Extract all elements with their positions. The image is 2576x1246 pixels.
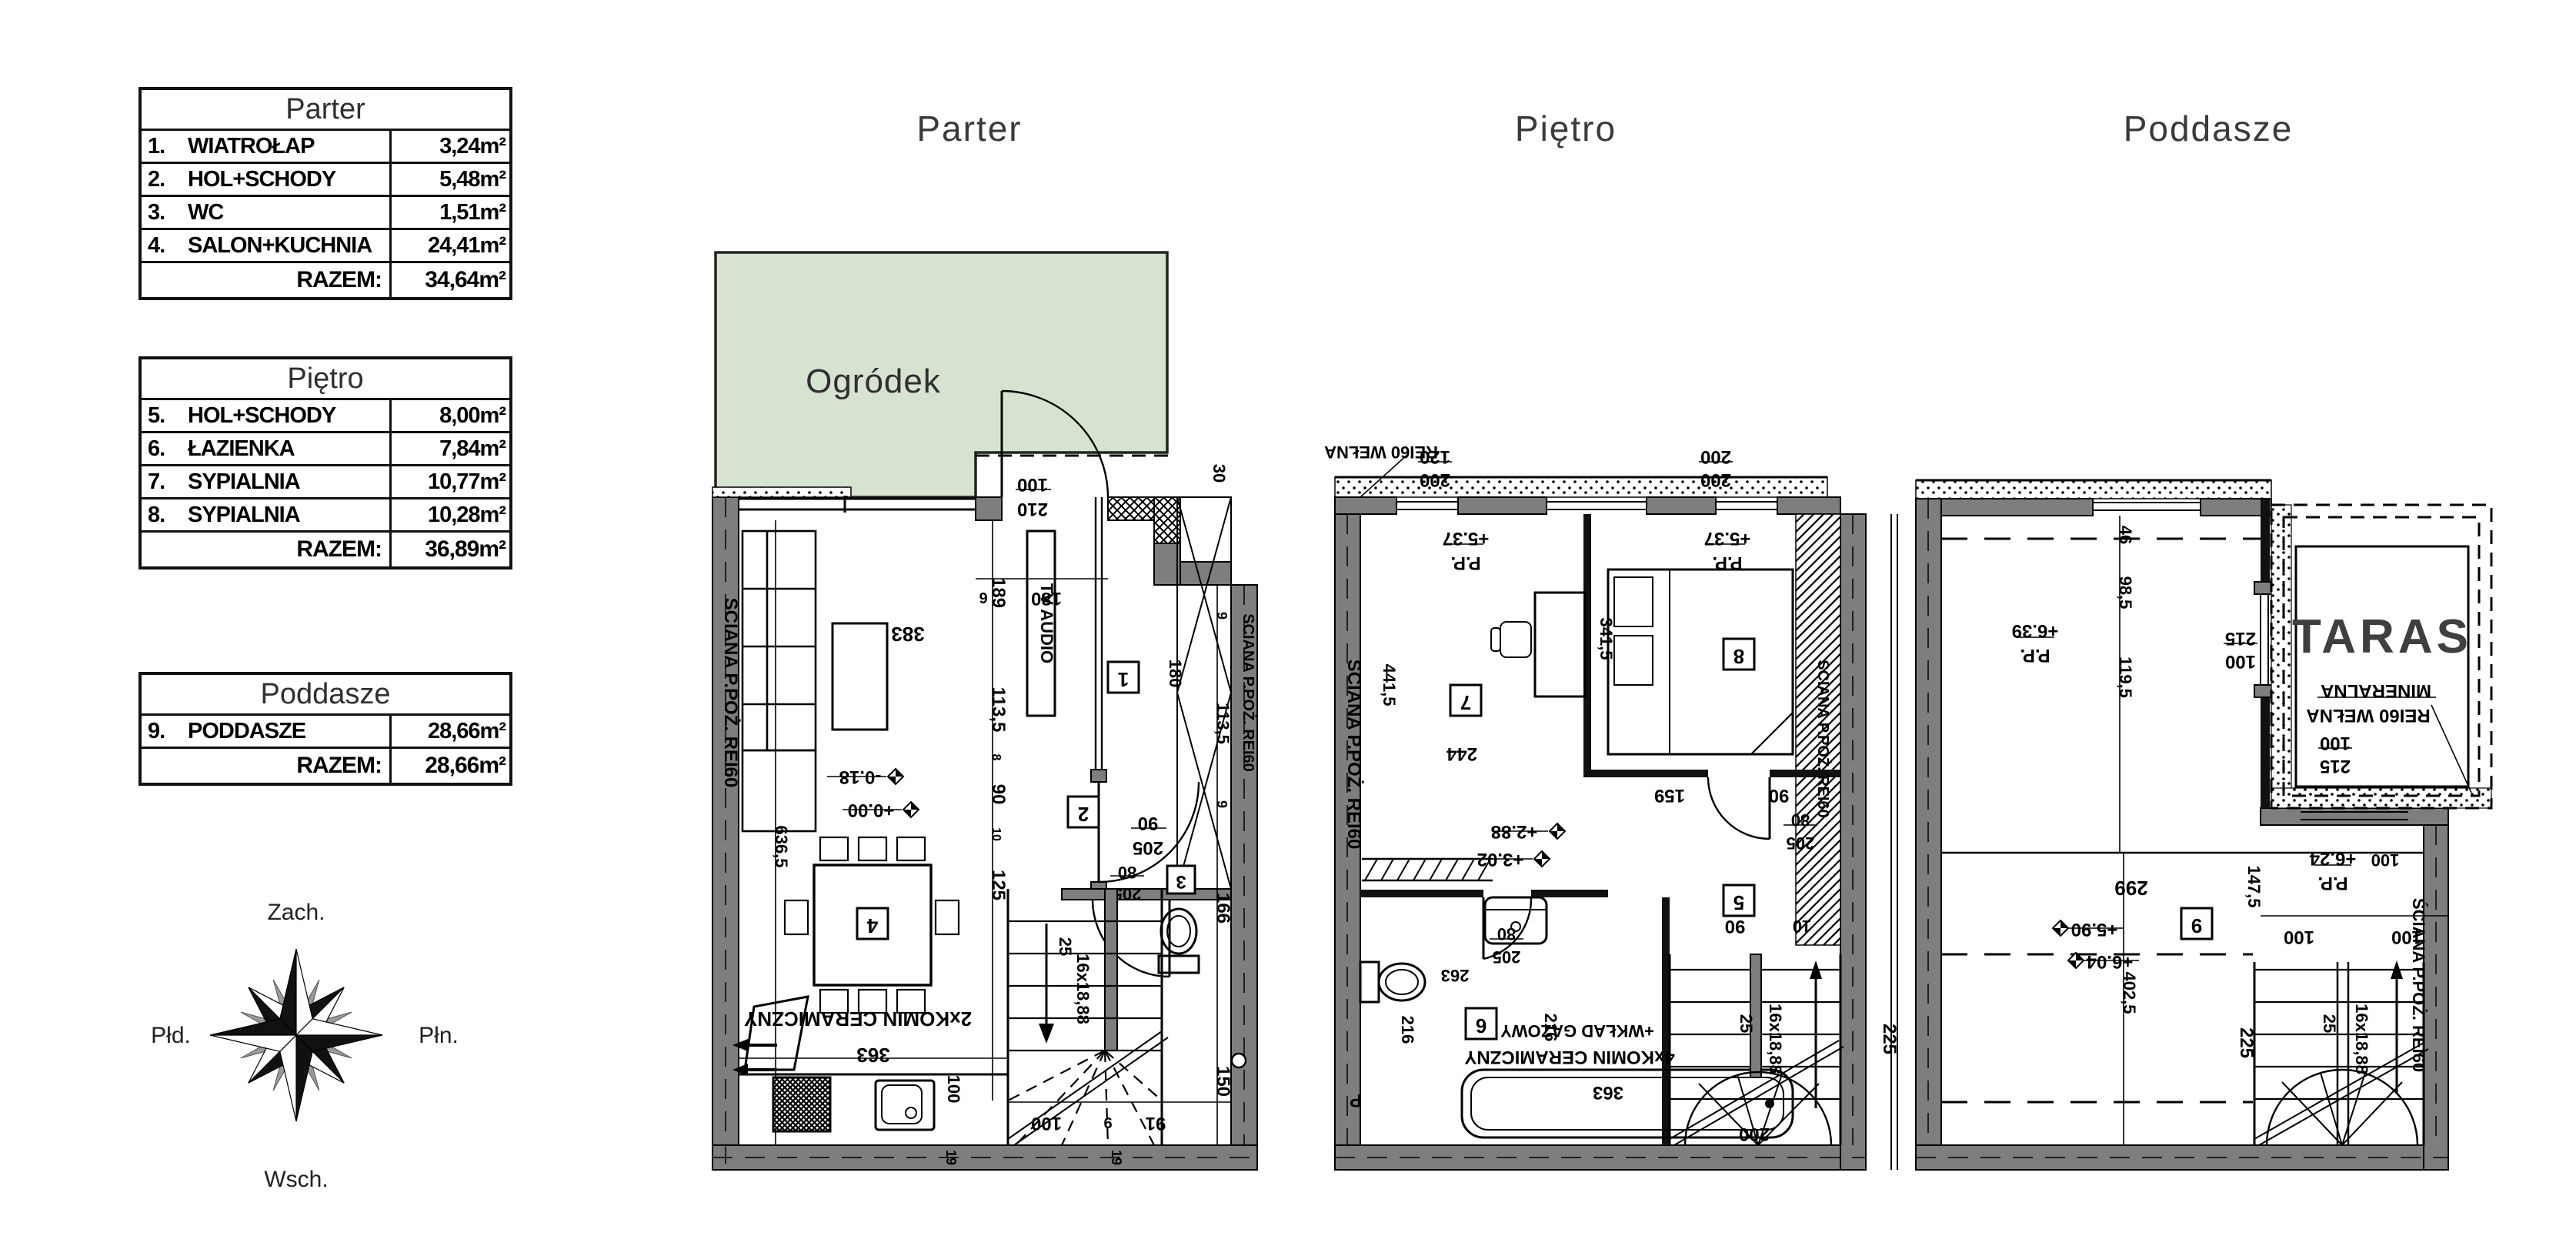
dim-label: 100 <box>1031 1113 1062 1134</box>
dim-label: 100 <box>1017 474 1048 495</box>
dim-label: 200 <box>1700 446 1731 467</box>
dim-label: 120 <box>1420 446 1450 467</box>
level-label: P.P. <box>1450 553 1480 573</box>
table-title: Parter <box>142 90 509 131</box>
level-label: +6.04 <box>2086 951 2133 972</box>
dim-label: 100 <box>944 1075 963 1104</box>
dim-label: 100 <box>2225 651 2256 672</box>
room-tag: 8 <box>1733 645 1744 668</box>
dim-label: 383 <box>891 623 924 646</box>
dim-label: 30 <box>1210 464 1229 483</box>
dim-label: 80 <box>1497 924 1516 944</box>
room-tag: 5 <box>1733 891 1744 914</box>
row-no: 2. <box>142 164 188 195</box>
row-name: SALON+KUCHNIA <box>188 230 389 261</box>
room-tag: 1 <box>1118 668 1129 691</box>
wall-symbol <box>1232 1054 1246 1067</box>
toilet-icon <box>1360 962 1425 1002</box>
level-label: +2.88 <box>1491 821 1538 842</box>
dim-label: 80 <box>1118 863 1136 882</box>
compass-rose: Zach. Płn. Wsch. Płd. <box>123 877 485 1208</box>
room-tag: 3 <box>1176 871 1186 892</box>
dim-label: 402,5 <box>2120 971 2139 1014</box>
dim-label: 159 <box>1654 785 1685 806</box>
total-label: RAZEM: <box>142 263 389 297</box>
level-label: +5.37 <box>1443 528 1490 549</box>
table-row: 6. ŁAZIENKA 7,84m² <box>142 433 509 466</box>
window-band <box>739 496 976 513</box>
insulation-label: MINERALNA <box>2321 680 2431 701</box>
row-name: PODDASZE <box>188 716 389 747</box>
total-value: 34,64m² <box>389 263 509 297</box>
row-area: 7,84m² <box>389 433 509 464</box>
dim-label: 25 <box>2320 1014 2339 1033</box>
dim-label: 113,5 <box>1213 703 1233 744</box>
level-label: P.P. <box>1712 553 1742 573</box>
toilet-icon <box>1159 909 1199 973</box>
compass-label-south: Płd. <box>151 1023 191 1048</box>
row-no: 6. <box>142 433 188 464</box>
dim-label: 25 <box>1056 937 1075 956</box>
dim-label: 98,5 <box>2116 576 2135 610</box>
table-total-row: RAZEM: 28,66m² <box>142 749 509 783</box>
coffee-table <box>833 623 887 730</box>
table-total-row: RAZEM: 34,64m² <box>142 263 509 297</box>
floorplan-parter: Ogródek 100 210 <box>677 231 1323 1231</box>
table-row: 7. SYPIALNIA 10,77m² <box>142 466 509 499</box>
table-row: 3. WC 1,51m² <box>142 197 509 230</box>
dim-label: 363 <box>1593 1082 1623 1103</box>
dim-label: 113,5 <box>988 687 1009 733</box>
dim-label: 9 <box>1214 800 1230 808</box>
pion-label: P <box>1350 1090 1362 1111</box>
table-pietro: Piętro 5. HOL+SCHODY 8,00m² 6. ŁAZIENKA … <box>138 356 512 570</box>
row-no: 9. <box>142 716 188 747</box>
level-label: P.P. <box>2317 873 2347 894</box>
chair <box>1491 622 1531 657</box>
table-total-row: RAZEM: 36,89m² <box>142 533 509 566</box>
level-label: +0.00 <box>848 800 895 820</box>
stairs <box>1670 954 1844 1145</box>
plan-title-pietro: Piętro <box>1435 108 1697 149</box>
compass-label-west: Zach. <box>267 900 325 925</box>
insulation-label: REI60 WEŁNA <box>2306 705 2430 726</box>
row-no: 3. <box>142 197 188 228</box>
table-parter: Parter 1. WIATROŁAP 3,24m² 2. HOL+SCHODY… <box>138 87 512 300</box>
level-label: +5.90 <box>2071 919 2118 940</box>
dim-label: 46 <box>2116 526 2135 544</box>
dim-label: 80 <box>1791 810 1810 830</box>
dim-label: 10 <box>989 827 1003 841</box>
dim-label: 263 <box>1441 966 1470 985</box>
radiator <box>1362 859 1493 880</box>
table-poddasze: Poddasze 9. PODDASZE 28,66m² RAZEM: 28,6… <box>138 672 512 786</box>
plan-title-parter: Parter <box>839 108 1100 149</box>
level-label: +3.02 <box>1477 849 1524 870</box>
dim-label: 200 <box>1739 1124 1770 1144</box>
chimney-label: 2xKOMIN CERAMICZNY <box>744 1007 972 1031</box>
table-title: Piętro <box>142 359 509 400</box>
stairs-label: 16x18,88 <box>1073 954 1093 1024</box>
dim-label: 9 <box>1103 1114 1112 1131</box>
compass-cardinal-points <box>210 949 382 1121</box>
dim-label: 150 <box>1213 1066 1233 1097</box>
dim-label: 166 <box>1213 893 1233 924</box>
compass-label-east: Wsch. <box>264 1167 328 1192</box>
dim-label: 19 <box>1109 1150 1124 1165</box>
compass-label-north: Płn. <box>419 1023 459 1048</box>
dim-label: 205 <box>1493 947 1521 967</box>
row-area: 8,00m² <box>389 400 509 431</box>
dim-label: 8 <box>989 754 1003 761</box>
dim-label: 90 <box>1725 916 1746 937</box>
dim-label: 225 <box>2236 1027 2257 1058</box>
dim-label: 119,5 <box>2116 656 2135 698</box>
dim-label: 441,5 <box>1380 663 1399 706</box>
blueprint-page: Parter 1. WIATROŁAP 3,24m² 2. HOL+SCHODY… <box>0 0 2576 1246</box>
table-row: 9. PODDASZE 28,66m² <box>142 716 509 749</box>
firewall-label: SCIANA P.POŻ. REI60 <box>1343 660 1364 850</box>
total-value: 28,66m² <box>389 749 509 783</box>
firewall-label: SCIANA P.POŻ. REI60 <box>720 598 741 788</box>
total-label: RAZEM: <box>142 533 389 566</box>
row-area: 5,48m² <box>389 164 509 195</box>
dim-label: 215 <box>2320 756 2351 777</box>
row-area: 3,24m² <box>389 131 509 162</box>
room-tag: 7 <box>1460 691 1471 714</box>
terrace-label: TARAS <box>2292 610 2472 663</box>
dim-label: 90 <box>1138 813 1159 833</box>
level-label: -0.18 <box>839 767 882 787</box>
dim-label: 189 <box>988 577 1009 608</box>
row-area: 28,66m² <box>389 716 509 747</box>
dim-label: 147,5 <box>2244 865 2264 907</box>
stairs <box>2254 960 2428 1145</box>
sofa <box>742 531 816 831</box>
dim-label: 205 <box>1133 837 1163 858</box>
chimney-label: +WKŁAD GAZOWY <box>1500 1021 1654 1041</box>
bed <box>1608 570 1793 754</box>
dim-label: 100 <box>2284 927 2314 947</box>
level-label: +5.37 <box>1704 528 1751 549</box>
dim-label: 200 <box>1700 469 1731 490</box>
table-row: 2. HOL+SCHODY 5,48m² <box>142 164 509 197</box>
dim-label: 125 <box>988 870 1009 900</box>
garden-label: Ogródek <box>806 362 941 400</box>
table-row: 4. SALON+KUCHNIA 24,41m² <box>142 230 509 263</box>
row-area: 1,51m² <box>389 197 509 228</box>
room-tag: 9 <box>2191 914 2202 937</box>
firewall-label: SCIANA P.POŻ. REI60 <box>1814 660 1832 818</box>
total-value: 36,89m² <box>389 533 509 566</box>
chimney-label: 4xKOMIN CERAMICZNY <box>1464 1047 1674 1067</box>
row-name: SYPIALNIA <box>188 466 389 497</box>
dim-label: 6 <box>979 589 987 606</box>
closet <box>1177 497 1231 889</box>
dim-label: 25 <box>1737 1014 1756 1033</box>
row-area: 24,41m² <box>389 230 509 261</box>
dim-label: 9 <box>1214 612 1230 620</box>
row-name: ŁAZIENKA <box>188 433 389 464</box>
dim-label: 10 <box>1793 917 1811 936</box>
floorplan-poddasze: TARAS MINERALNA REI60 WEŁNA 215 100 100 … <box>1893 431 2576 1246</box>
row-name: WIATROŁAP <box>188 131 389 162</box>
row-name: SYPIALNIA <box>188 499 389 530</box>
dim-label: 91 <box>1146 1113 1166 1134</box>
dim-label: 341,5 <box>1597 617 1616 660</box>
table-row: 8. SYPIALNIA 10,28m² <box>142 499 509 533</box>
row-name: WC <box>188 197 389 228</box>
row-no: 1. <box>142 131 188 162</box>
row-area: 10,28m² <box>389 499 509 530</box>
firewall-label: SCIANA P.POŻ. REI60 <box>1240 613 1257 772</box>
dim-label: 90 <box>988 784 1009 805</box>
dim-label: 100 <box>2320 733 2351 753</box>
stairs-label: 16x18,88 <box>1766 1004 1785 1074</box>
table-row: 1. WIATROŁAP 3,24m² <box>142 131 509 164</box>
dim-label: 200 <box>1420 469 1450 490</box>
tv-label: TV AUDIO <box>1037 583 1056 663</box>
dim-label: 244 <box>1446 743 1477 764</box>
total-label: RAZEM: <box>142 749 389 783</box>
dim-label: 205 <box>1787 833 1815 853</box>
row-no: 8. <box>142 499 188 530</box>
row-no: 4. <box>142 230 188 261</box>
table-row: 5. HOL+SCHODY 8,00m² <box>142 400 509 433</box>
dim-label: 210 <box>1017 499 1048 519</box>
plan-title-poddasze: Poddasze <box>2077 108 2339 149</box>
dim-label: 299 <box>2114 877 2147 900</box>
row-name: HOL+SCHODY <box>188 400 389 431</box>
table-title: Poddasze <box>142 675 509 716</box>
dim-label: 180 <box>1166 660 1185 688</box>
room-tag: 2 <box>1078 803 1089 826</box>
room-tag: 4 <box>866 914 878 937</box>
dim-label: 216 <box>1398 1016 1417 1044</box>
stove-icon <box>773 1077 830 1131</box>
row-no: 5. <box>142 400 188 431</box>
dim-label: 19 <box>943 1150 959 1165</box>
level-label: P.P. <box>2020 645 2050 666</box>
garden-area <box>716 252 1167 497</box>
dim-label: 636,5 <box>772 825 791 867</box>
dim-label: 90 <box>1769 785 1790 806</box>
firewall-label: ŚCIANA P.POŻ. REI60 <box>2409 898 2428 1072</box>
floorplan-pietro: REI60 WEŁNA 120 200 200 200 80 205 80 20… <box>1308 431 1924 1246</box>
room-tag: 6 <box>1476 1014 1487 1037</box>
dim-label: 215 <box>2225 628 2256 649</box>
row-area: 10,77m² <box>389 466 509 497</box>
stairs-label: 16x18,88 <box>2352 1004 2371 1074</box>
row-no: 7. <box>142 466 188 497</box>
dim-label: 363 <box>856 1044 889 1067</box>
desk <box>1535 593 1585 696</box>
row-name: HOL+SCHODY <box>188 164 389 195</box>
level-label: +6.39 <box>2012 620 2059 641</box>
level-label: +6.24 <box>2309 848 2356 869</box>
